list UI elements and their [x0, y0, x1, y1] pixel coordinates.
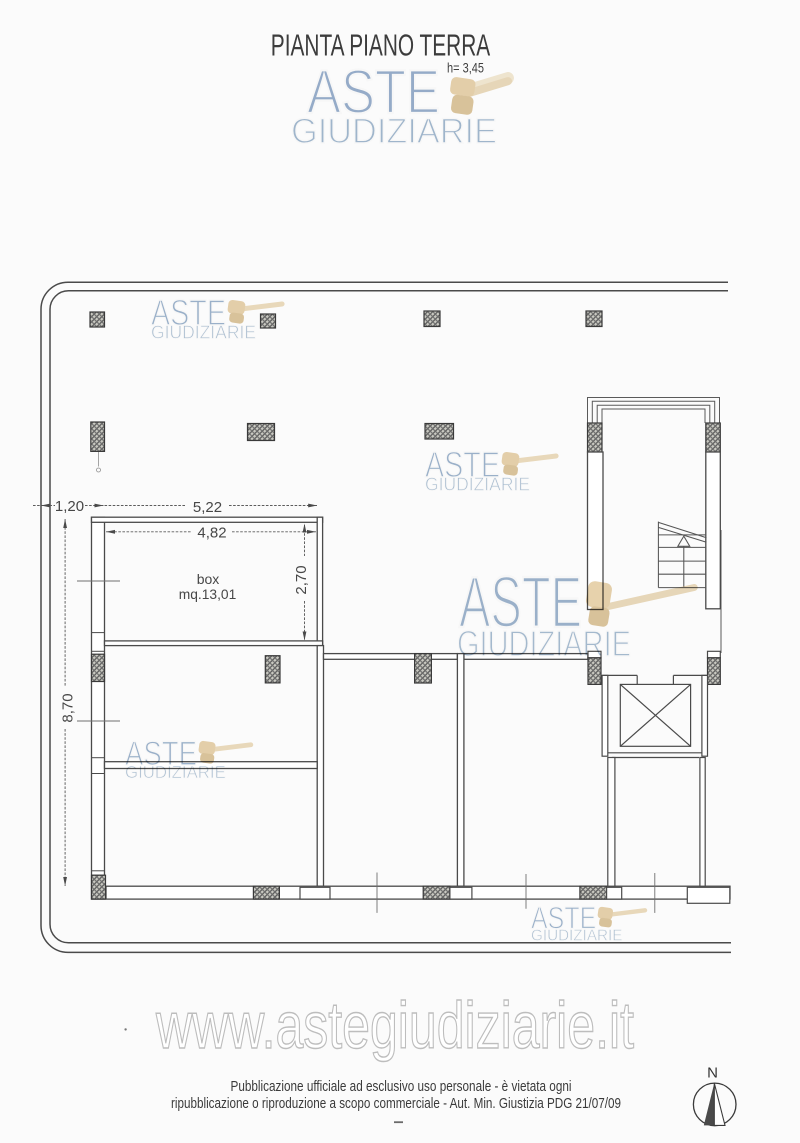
svg-text:www.astegiudiziarie.it: www.astegiudiziarie.it [155, 988, 634, 1062]
svg-text:GIUDIZIARIE: GIUDIZIARIE [457, 623, 631, 664]
svg-text:8,70: 8,70 [60, 693, 77, 722]
svg-text:Pubblicazione ufficiale ad esc: Pubblicazione ufficiale ad esclusivo uso… [231, 1079, 572, 1095]
svg-text:2,70: 2,70 [293, 565, 310, 594]
svg-text:1,20: 1,20 [55, 498, 84, 515]
svg-text:mq.13,01: mq.13,01 [179, 587, 237, 602]
svg-text:GIUDIZIARIE: GIUDIZIARIE [291, 111, 497, 151]
svg-text:box: box [197, 571, 220, 587]
svg-text:5,22: 5,22 [193, 499, 222, 516]
svg-text:ripubblicazione o riproduzione: ripubblicazione o riproduzione a scopo c… [171, 1096, 621, 1112]
svg-text:h= 3,45: h= 3,45 [447, 61, 484, 76]
svg-text:4,82: 4,82 [197, 525, 226, 542]
svg-text:N: N [707, 1065, 718, 1082]
